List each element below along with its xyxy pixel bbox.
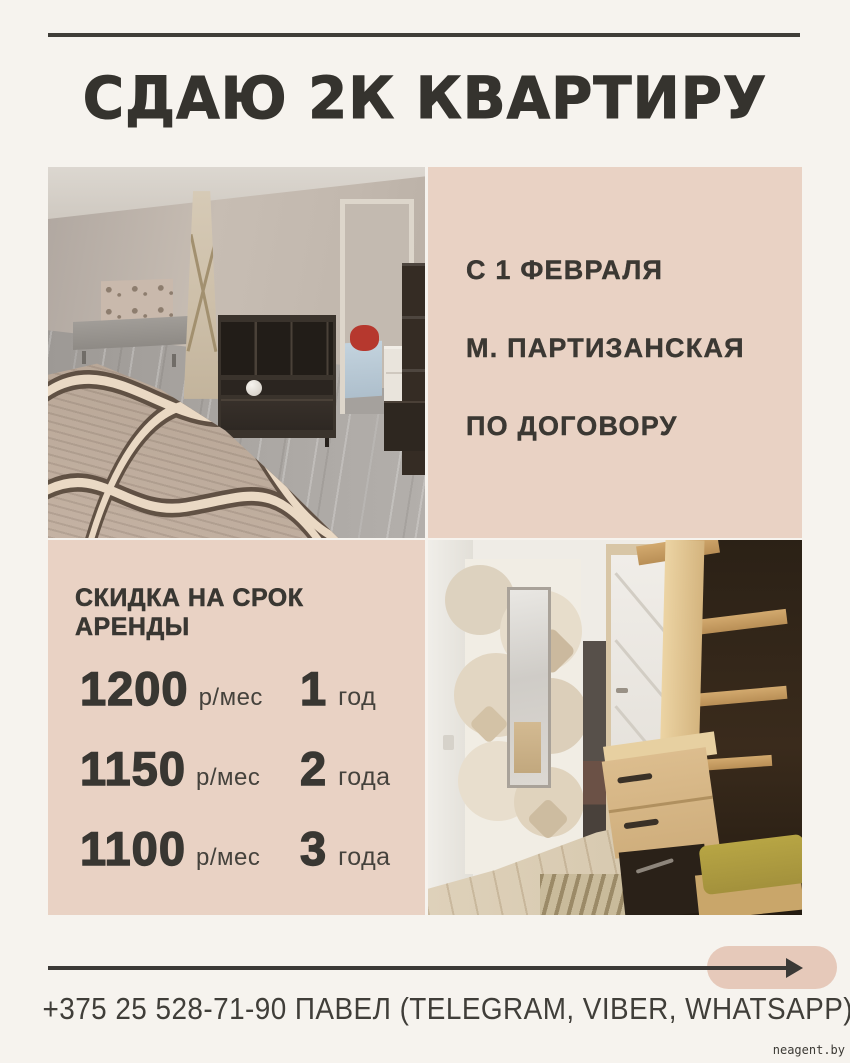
living-room-photo	[48, 167, 425, 538]
rental-flyer: СДАЮ 2К КВАРТИРУ	[0, 0, 850, 1063]
metro-station: М. ПАРТИЗАНСКАЯ	[466, 333, 802, 363]
arrow-right-icon	[786, 958, 803, 978]
term-label: года	[338, 843, 390, 872]
term-group: 2 года	[300, 741, 391, 796]
price-amount: 1150	[80, 740, 186, 798]
right-drawer-unit	[384, 401, 425, 451]
term-group: 1 год	[300, 661, 376, 716]
price-group: 1200 р/мес	[80, 660, 300, 718]
dark-shelving-unit	[218, 315, 337, 437]
wardrobe-mirror	[507, 587, 552, 788]
price-unit: р/мес	[196, 844, 260, 872]
content-grid: С 1 ФЕВРАЛЯ М. ПАРТИЗАНСКАЯ ПО ДОГОВОРУ …	[48, 167, 802, 915]
drawer-handle	[616, 772, 652, 783]
price-amount: 1200	[80, 660, 189, 718]
door-groove	[614, 572, 669, 641]
door-handle	[616, 688, 628, 693]
daybed-leg	[82, 351, 86, 364]
site-watermark: neagent.by	[773, 1043, 845, 1057]
term-label: год	[338, 683, 376, 712]
shelf-drawers	[221, 399, 333, 430]
shelf-leg	[325, 438, 329, 447]
info-panel: С 1 ФЕВРАЛЯ М. ПАРТИЗАНСКАЯ ПО ДОГОВОРУ	[428, 167, 802, 538]
price-group: 1100 р/мес	[80, 820, 300, 878]
contact-phone-line: +375 25 528-71-90 ПАВЕЛ (TELEGRAM, VIBER…	[43, 991, 808, 1027]
page-title: СДАЮ 2К КВАРТИРУ	[13, 64, 838, 132]
term-label: года	[338, 763, 390, 792]
oak-dresser	[601, 747, 718, 858]
term-value: 2	[300, 741, 326, 796]
top-divider-line	[48, 33, 800, 37]
price-amount: 1100	[80, 820, 186, 878]
price-row: 1100 р/мес 3 года	[80, 820, 425, 882]
light-switch	[443, 735, 454, 750]
drawer-handle	[623, 819, 659, 830]
available-from: С 1 ФЕВРАЛЯ	[466, 255, 802, 285]
shelf-cubes	[221, 322, 333, 376]
term-value: 1	[300, 661, 326, 716]
curtain	[184, 191, 220, 399]
price-unit: р/мес	[196, 764, 260, 792]
by-agreement: ПО ДОГОВОРУ	[466, 411, 802, 441]
daybed-leg	[172, 354, 176, 367]
term-group: 3 года	[300, 821, 391, 876]
price-group: 1150 р/мес	[80, 740, 300, 798]
mirror-reflection	[514, 722, 541, 773]
price-unit: р/мес	[199, 684, 263, 712]
term-value: 3	[300, 821, 326, 876]
hallway-photo	[428, 540, 802, 915]
price-row: 1200 р/мес 1 год	[80, 660, 425, 722]
discount-panel: СКИДКА НА СРОК АРЕНДЫ 1200 р/мес 1 год 1…	[48, 540, 425, 915]
drawer-divider	[608, 795, 712, 813]
discount-heading: СКИДКА НА СРОК АРЕНДЫ	[75, 584, 425, 642]
red-pillows	[350, 325, 379, 350]
price-row: 1150 р/мес 2 года	[80, 740, 425, 802]
footer-arrow-line	[48, 966, 790, 970]
shelf-gap	[221, 380, 333, 395]
